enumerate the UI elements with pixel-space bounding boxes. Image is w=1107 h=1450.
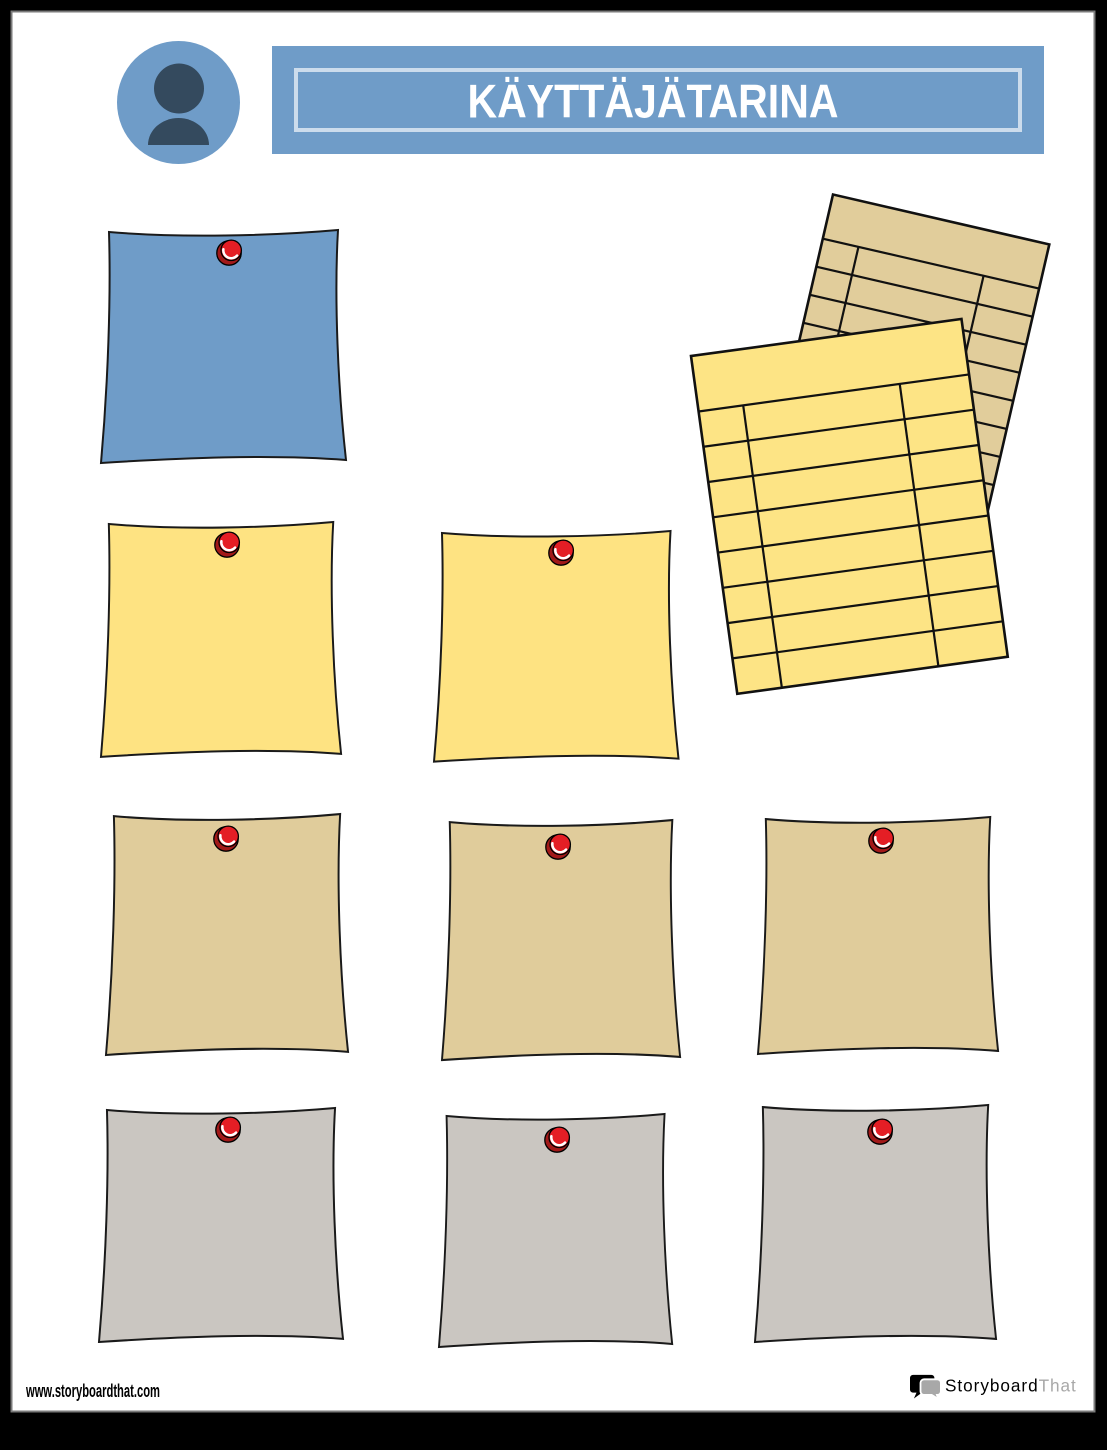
svg-text:KÄYTTÄJÄTARINA: KÄYTTÄJÄTARINA [468, 75, 839, 128]
svg-text:www.storyboardthat.com: www.storyboardthat.com [25, 1381, 160, 1401]
svg-text:StoryboardThat: StoryboardThat [945, 1376, 1077, 1396]
